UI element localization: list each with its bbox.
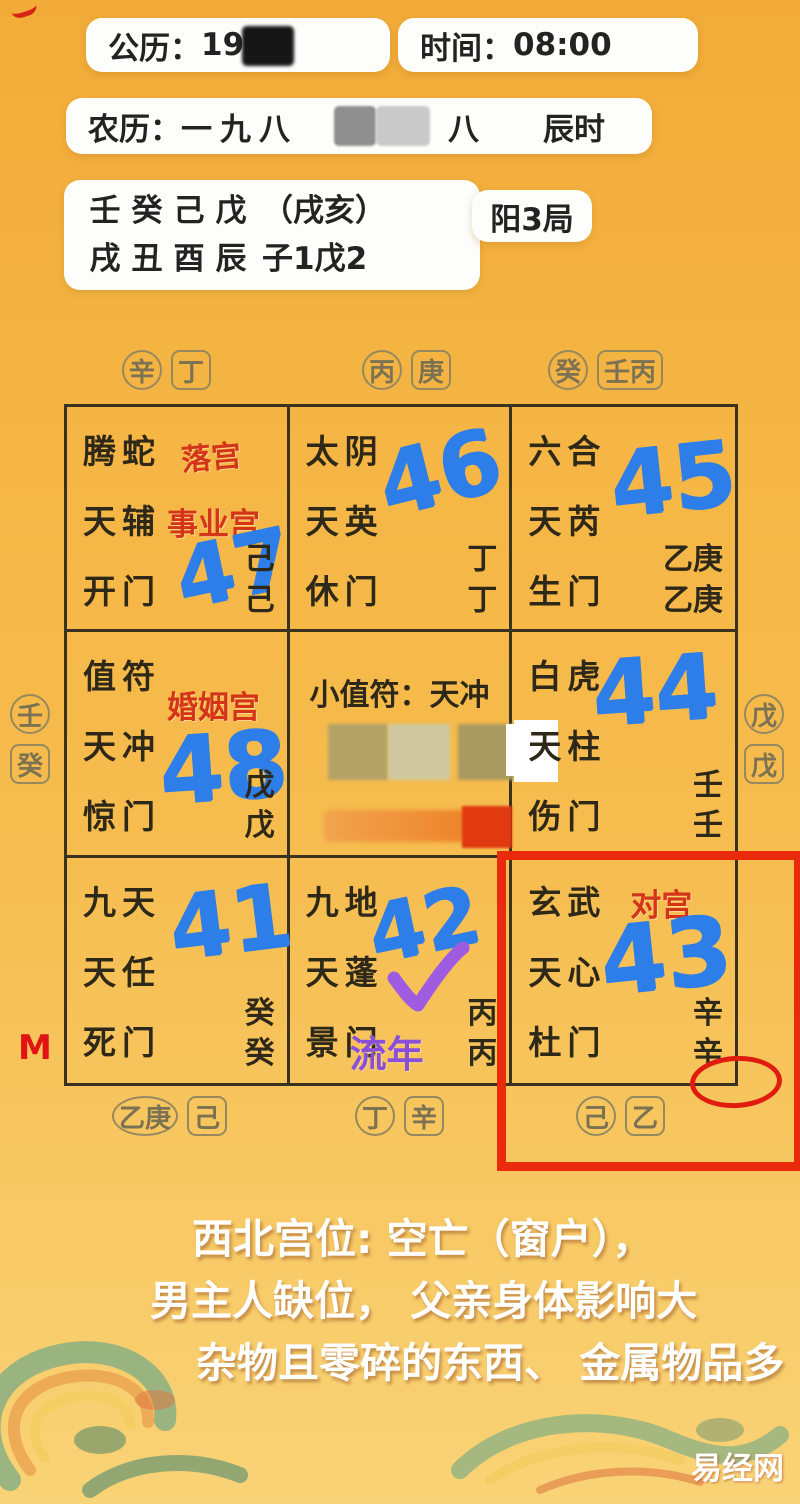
earth-stem: 乙庚 xyxy=(663,581,723,622)
flowing-year-label: 流年 xyxy=(350,1024,424,1078)
heaven-stem: 乙庚 xyxy=(663,540,723,581)
cell-stems: 己 己 xyxy=(245,540,275,621)
palace-cell-nw: 腾蛇 天辅 开门 落宫 事业宫 47 己 己 xyxy=(67,407,290,632)
stem-badge-circle: 壬 xyxy=(10,694,50,734)
bazi-branch: 戌 xyxy=(84,235,126,283)
cell-stems: 乙庚 乙庚 xyxy=(663,540,723,621)
bazi-branches-row: 戌 丑 酉 辰 子1戊2 xyxy=(84,235,412,283)
handwritten-number: 46 xyxy=(367,408,511,538)
bazi-panel: 壬 癸 己 戊 （戌亥） 戌 丑 酉 辰 子1戊2 xyxy=(64,180,480,290)
footer-line: 西北宫位: 空亡（窗户）， xyxy=(192,1208,784,1270)
stem-badge-square: 庚 xyxy=(411,350,451,390)
bazi-stem: 戊 xyxy=(210,187,252,235)
cell-stems: 癸 癸 xyxy=(245,994,275,1075)
footer-line: 杂物且零碎的东西、 金属物品多 xyxy=(196,1332,784,1394)
redaction-block xyxy=(458,724,514,780)
redaction-block xyxy=(462,806,512,848)
redaction-block xyxy=(388,724,450,780)
bazi-kongwang: （戌亥） xyxy=(252,187,412,235)
star-name: 天冲 xyxy=(83,720,161,768)
palace-cell-e: 白虎 天柱 伤门 44 壬 壬 xyxy=(512,632,735,857)
stem-badge-square: 丁 xyxy=(171,350,211,390)
heaven-stem: 戊 xyxy=(245,766,275,807)
earth-stem: 壬 xyxy=(693,806,723,847)
stem-badge-circle: 乙庚 xyxy=(112,1096,178,1136)
lunar-date-label: 农历： xyxy=(88,104,181,149)
ju-label: 阳3局 xyxy=(490,194,574,239)
earth-stem: 丙 xyxy=(467,1034,497,1075)
star-name: 天英 xyxy=(306,495,384,543)
star-name: 天辅 xyxy=(83,495,161,543)
deity-name: 腾蛇 xyxy=(83,425,161,473)
top-stems-east-group: 癸 壬丙 xyxy=(548,350,663,390)
qimen-chart-page: 公历： 198 时间： 08:00 农历： 一九八 八 辰时 壬 癸 己 戊 （… xyxy=(0,0,800,1504)
heaven-stem: 壬 xyxy=(693,766,723,807)
palace-cell-w: 值符 天冲 惊门 婚姻宫 48 戊 戊 xyxy=(67,632,290,857)
highlight-box xyxy=(497,851,800,1171)
bazi-stem: 己 xyxy=(168,187,210,235)
check-mark-icon xyxy=(384,942,470,1014)
lunar-date-prefix: 一九八 xyxy=(181,104,298,149)
redaction-block xyxy=(376,106,430,146)
heaven-stem: 己 xyxy=(245,540,275,581)
earth-stem: 癸 xyxy=(245,1034,275,1075)
redaction-block xyxy=(324,810,474,842)
cell-stems: 壬 壬 xyxy=(693,766,723,847)
redaction-block xyxy=(334,106,376,146)
cell-stems: 丙 丙 xyxy=(467,994,497,1075)
lunar-hour: 辰时 xyxy=(543,104,605,149)
solar-date-label: 公历： xyxy=(108,23,201,68)
handwritten-number: 45 xyxy=(605,421,741,539)
footer-interpretation: 西北宫位: 空亡（窗户）， 男主人缺位， 父亲身体影响大 杂物且零碎的东西、 金… xyxy=(150,1208,784,1394)
stem-badge-square: 己 xyxy=(187,1096,227,1136)
palace-cell-sw: 九天 天任 死门 41 癸 癸 xyxy=(67,858,290,1083)
center-duty-star-title: 小值符：天冲 xyxy=(290,670,510,714)
gate-name: 开门 xyxy=(83,565,161,613)
bazi-stem: 癸 xyxy=(126,187,168,235)
bazi-branch: 辰 xyxy=(210,235,252,283)
stem-badge-circle: 戊 xyxy=(744,694,784,734)
cell-stems: 戊 戊 xyxy=(245,766,275,847)
gate-name: 生门 xyxy=(528,565,606,613)
redaction-block xyxy=(328,724,388,780)
corner-red-mark xyxy=(7,0,38,21)
redaction-block xyxy=(242,26,294,66)
gate-name: 惊门 xyxy=(83,790,161,838)
stem-badge-square: 戊 xyxy=(744,744,784,784)
palace-cell-n: 太阴 天英 休门 46 丁 丁 xyxy=(290,407,513,632)
bottom-stems-center-group: 丁 辛 xyxy=(355,1096,444,1136)
deity-name: 六合 xyxy=(528,425,606,473)
m-marker: M xyxy=(18,1028,52,1068)
stem-badge-square: 壬丙 xyxy=(597,350,663,390)
lunar-date-field[interactable]: 农历： 一九八 八 辰时 xyxy=(66,98,652,154)
footer-line: 男主人缺位， 父亲身体影响大 xyxy=(150,1270,784,1332)
palace-cell-s: 九地 天蓬 景门 42 流年 丙 丙 xyxy=(290,858,513,1083)
bazi-branch: 丑 xyxy=(126,235,168,283)
earth-stem: 丁 xyxy=(467,581,497,622)
redaction-notch xyxy=(506,724,520,776)
heaven-stem: 丙 xyxy=(467,994,497,1035)
left-stems-group: 壬 癸 xyxy=(10,694,50,784)
time-value: 08:00 xyxy=(513,27,612,63)
watermark: 易经网 xyxy=(691,1443,784,1488)
bazi-branch: 酉 xyxy=(168,235,210,283)
earth-stem: 己 xyxy=(245,581,275,622)
ju-badge: 阳3局 xyxy=(472,190,592,242)
gate-name: 休门 xyxy=(306,565,384,613)
bottom-stems-west-group: 乙庚 己 xyxy=(112,1096,227,1136)
handwritten-number: 41 xyxy=(163,863,297,980)
handwritten-number: 44 xyxy=(589,634,721,747)
top-stems-center-group: 丙 庚 xyxy=(362,350,451,390)
top-stems-west-group: 辛 丁 xyxy=(122,350,211,390)
palace-cell-center: 小值符：天冲 xyxy=(290,632,513,857)
deity-name: 九天 xyxy=(83,876,161,924)
bazi-xunshou: 子1戊2 xyxy=(252,235,412,283)
time-field[interactable]: 时间： 08:00 xyxy=(398,18,698,72)
time-label: 时间： xyxy=(420,23,513,68)
gate-name: 伤门 xyxy=(528,790,606,838)
bazi-stems-row: 壬 癸 己 戊 （戌亥） xyxy=(84,187,412,235)
heaven-stem: 癸 xyxy=(245,994,275,1035)
earth-stem: 戊 xyxy=(245,806,275,847)
cell-stems: 丁 丁 xyxy=(467,540,497,621)
stem-badge-square: 癸 xyxy=(10,744,50,784)
heaven-stem: 丁 xyxy=(467,540,497,581)
luogong-label: 落宫 xyxy=(179,430,243,479)
stem-badge-circle: 丙 xyxy=(362,350,402,390)
gate-name: 死门 xyxy=(83,1016,161,1064)
solar-date-field[interactable]: 公历： 198 xyxy=(86,18,390,72)
stem-badge-square: 辛 xyxy=(404,1096,444,1136)
star-name: 天任 xyxy=(83,946,161,994)
bazi-stem: 壬 xyxy=(84,187,126,235)
stem-badge-circle: 丁 xyxy=(355,1096,395,1136)
deity-name: 值符 xyxy=(83,650,161,698)
star-name: 天芮 xyxy=(528,495,606,543)
right-stems-group: 戊 戊 xyxy=(744,694,784,784)
palace-cell-ne: 六合 天芮 生门 45 乙庚 乙庚 xyxy=(512,407,735,632)
lunar-date-suffix: 八 xyxy=(448,104,479,149)
stem-badge-circle: 癸 xyxy=(548,350,588,390)
stem-badge-circle: 辛 xyxy=(122,350,162,390)
